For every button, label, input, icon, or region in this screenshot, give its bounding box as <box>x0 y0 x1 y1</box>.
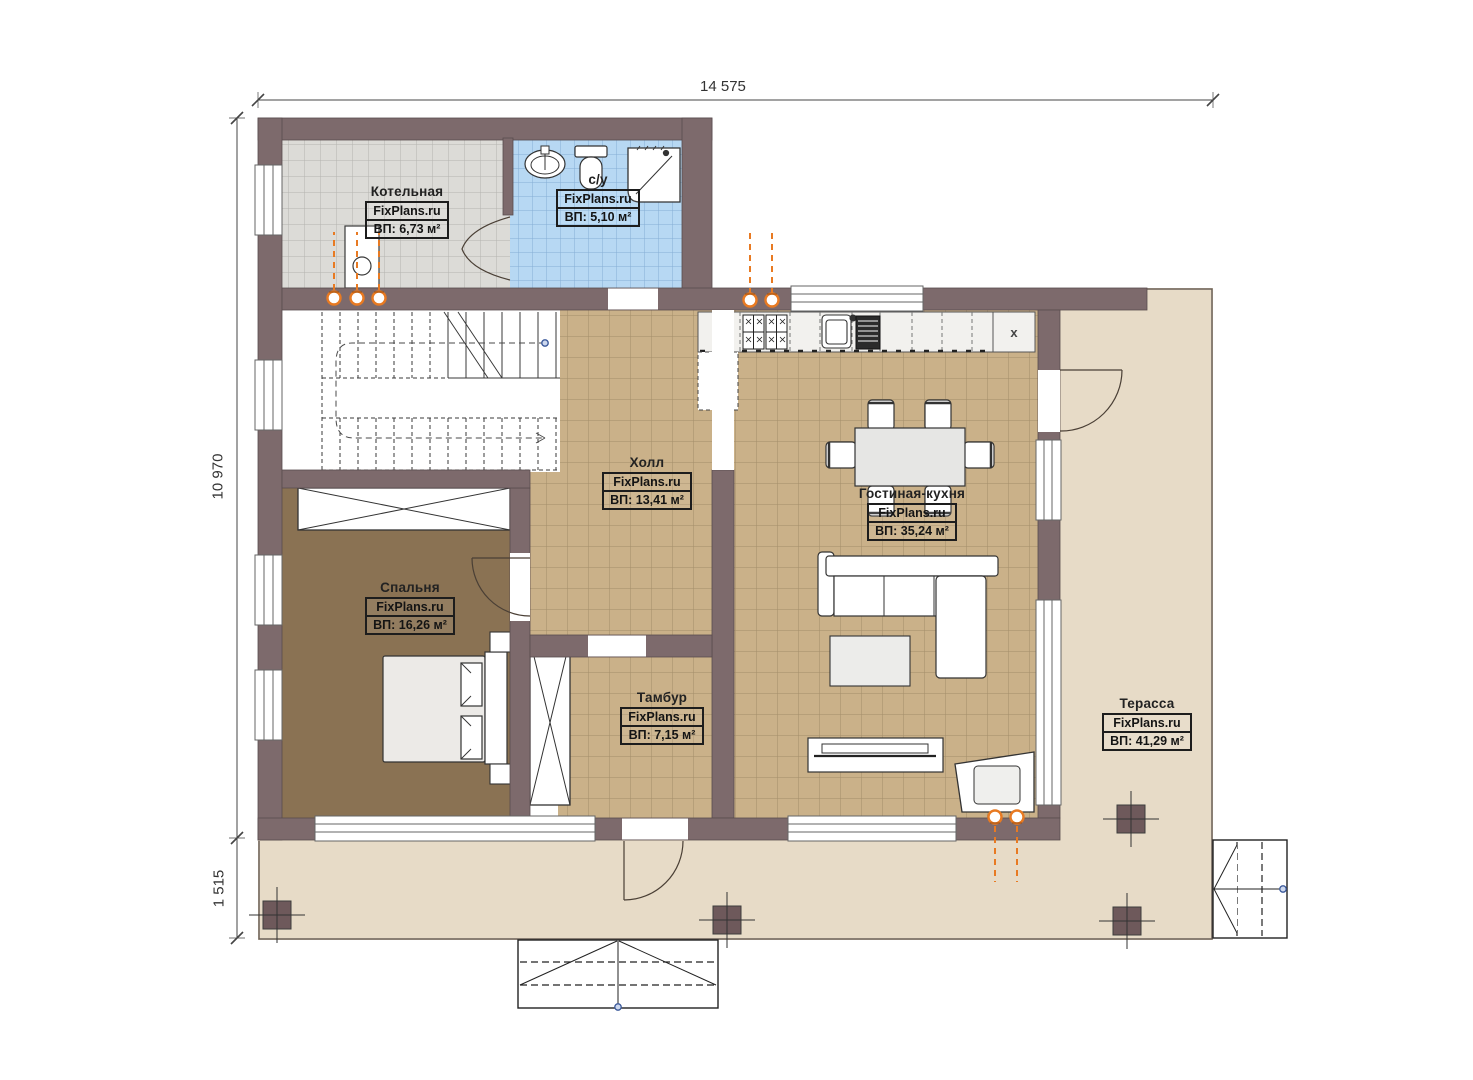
kitchen-cabinet-x: x <box>993 312 1035 352</box>
dimension-bottom-left: 1 515 <box>210 870 227 908</box>
room-label-bedroom: Спальня FixPlans.ru ВП: 16,26 м² <box>356 580 464 635</box>
room-info-box: FixPlans.ru ВП: 6,73 м² <box>365 201 448 239</box>
svg-text:x: x <box>1010 325 1018 340</box>
room-label-living: Гостиная-кухня FixPlans.ru ВП: 35,24 м² <box>852 486 972 541</box>
room-label-hall: Холл FixPlans.ru ВП: 13,41 м² <box>594 455 700 510</box>
room-area: ВП: 6,73 м² <box>367 221 446 237</box>
room-area: ВП: 13,41 м² <box>604 492 690 508</box>
room-name: с/у <box>588 172 607 187</box>
floor-plan-canvas: x <box>0 0 1473 1080</box>
room-name: Котельная <box>371 184 443 199</box>
room-name: Терасса <box>1120 696 1175 711</box>
window-kitchen-top <box>791 286 923 311</box>
watermark: FixPlans.ru <box>1104 715 1190 733</box>
room-name: Спальня <box>380 580 440 595</box>
room-label-terrace: Терасса FixPlans.ru ВП: 41,29 м² <box>1094 696 1200 751</box>
window-bottom-bedroom <box>315 816 595 841</box>
window-left-boiler <box>255 165 282 235</box>
kitchen-sink <box>822 315 856 348</box>
terrace-steps <box>1213 840 1287 938</box>
room-info-box: FixPlans.ru ВП: 13,41 м² <box>602 472 692 510</box>
closet-vestibule <box>530 640 570 805</box>
floor-stairwell <box>282 310 560 472</box>
room-info-box: FixPlans.ru ВП: 5,10 м² <box>556 189 639 227</box>
room-area: ВП: 5,10 м² <box>558 209 637 225</box>
window-left-bedroom-2 <box>255 670 282 740</box>
dimension-top: 14 575 <box>700 78 746 95</box>
watermark: FixPlans.ru <box>367 599 453 617</box>
window-right-2 <box>1036 600 1061 805</box>
room-area: ВП: 41,29 м² <box>1104 733 1190 749</box>
built-in-appliance <box>856 316 880 349</box>
wardrobe-bedroom <box>298 488 510 530</box>
room-info-box: FixPlans.ru ВП: 16,26 м² <box>365 597 455 635</box>
room-info-box: FixPlans.ru ВП: 7,15 м² <box>620 707 703 745</box>
window-left-stairs <box>255 360 282 430</box>
tv-stand <box>808 738 943 772</box>
room-area: ВП: 16,26 м² <box>367 617 453 633</box>
window-right-1 <box>1036 440 1061 520</box>
room-area: ВП: 7,15 м² <box>622 727 701 743</box>
window-bottom-living <box>788 816 956 841</box>
room-label-boiler: Котельная FixPlans.ru ВП: 6,73 м² <box>352 184 462 239</box>
coffee-table <box>830 636 910 686</box>
room-name: Гостиная-кухня <box>859 486 965 501</box>
entrance-steps <box>518 940 718 1010</box>
dimension-left: 10 970 <box>209 454 226 500</box>
watermark: FixPlans.ru <box>604 474 690 492</box>
room-name: Тамбур <box>637 690 687 705</box>
room-area: ВП: 35,24 м² <box>869 523 955 539</box>
room-info-box: FixPlans.ru ВП: 41,29 м² <box>1102 713 1192 751</box>
room-label-bathroom: с/у FixPlans.ru ВП: 5,10 м² <box>545 172 651 227</box>
double-bed <box>383 652 507 764</box>
room-name: Холл <box>630 455 665 470</box>
watermark: FixPlans.ru <box>622 709 701 727</box>
window-left-bedroom-1 <box>255 555 282 625</box>
room-info-box: FixPlans.ru ВП: 35,24 м² <box>867 503 957 541</box>
floor-plan-drawing: x <box>0 0 1473 1080</box>
watermark: FixPlans.ru <box>558 191 637 209</box>
room-label-vestibule: Тамбур FixPlans.ru ВП: 7,15 м² <box>612 690 712 745</box>
watermark: FixPlans.ru <box>367 203 446 221</box>
watermark: FixPlans.ru <box>869 505 955 523</box>
